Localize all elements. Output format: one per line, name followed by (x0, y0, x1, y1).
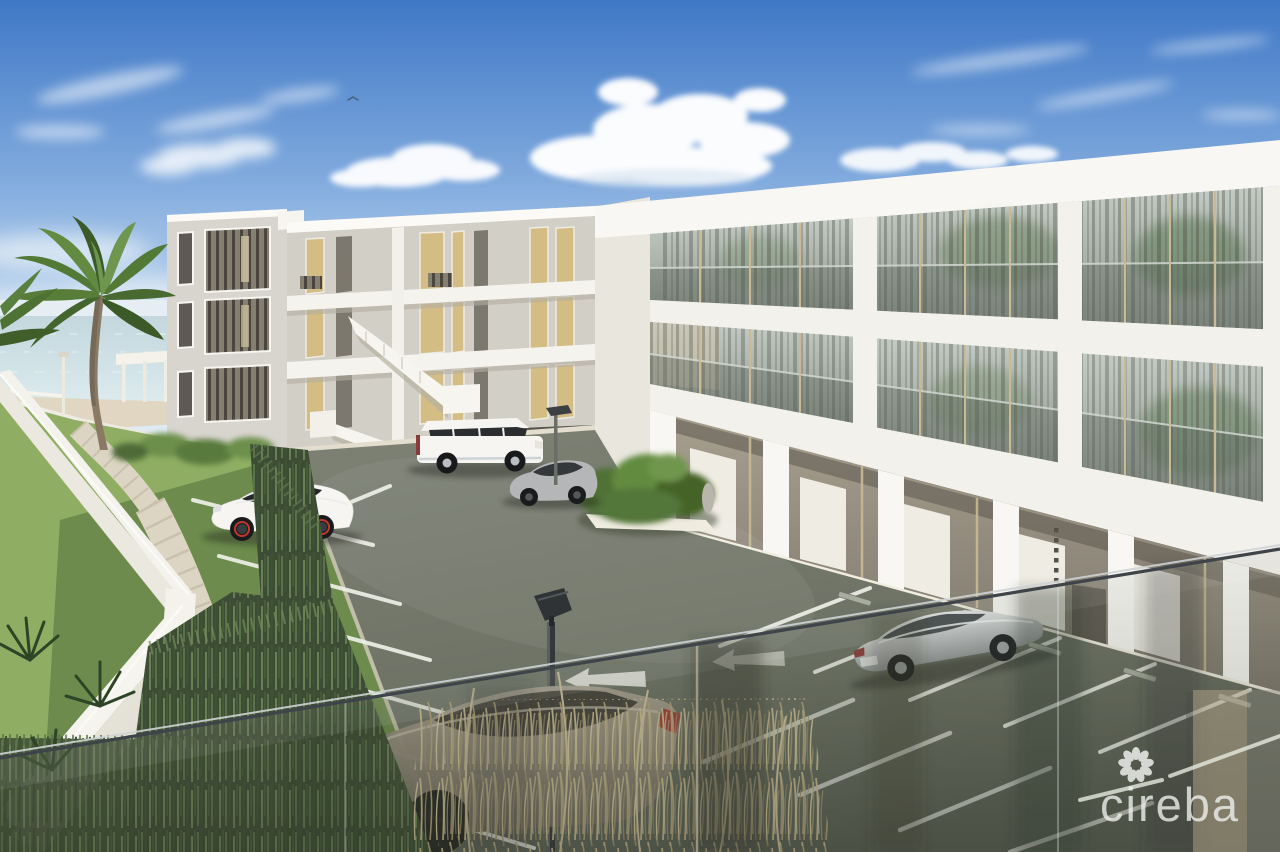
west-windows (178, 227, 270, 422)
vent-louver (300, 276, 322, 289)
condo-rendering: cireba (0, 0, 1280, 852)
south-pier (392, 227, 404, 448)
watermark-text: cireba (1100, 778, 1240, 831)
rendering-canvas: cireba (0, 0, 1280, 852)
statue (702, 483, 714, 513)
vent-louver-2 (428, 273, 452, 287)
